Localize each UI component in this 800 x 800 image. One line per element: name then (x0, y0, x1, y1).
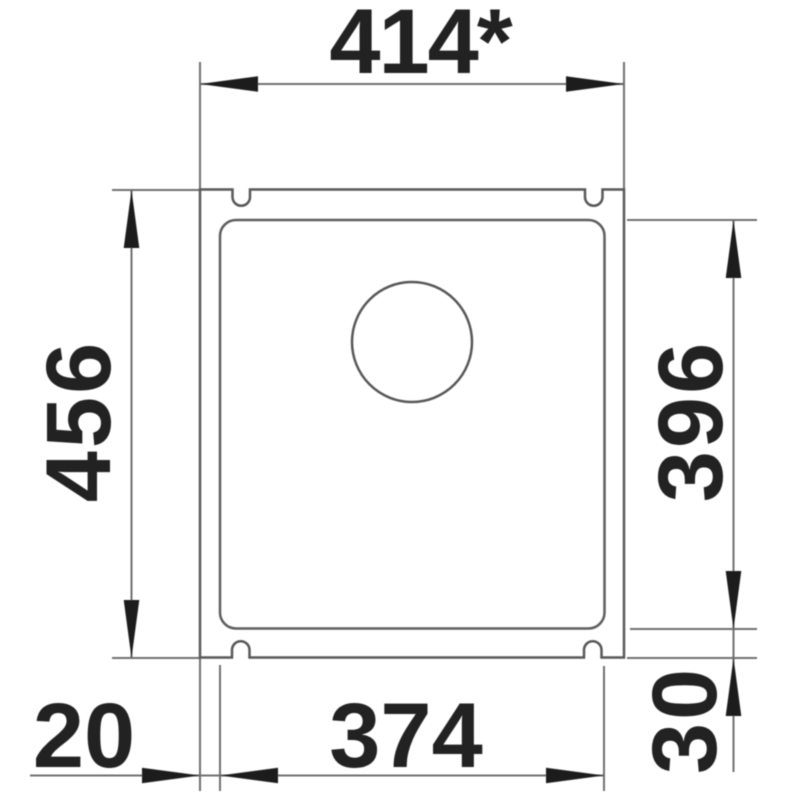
svg-text:456: 456 (28, 340, 130, 503)
svg-text:414*: 414* (329, 0, 512, 93)
svg-text:374: 374 (329, 685, 483, 787)
svg-text:20: 20 (33, 685, 135, 787)
svg-text:396: 396 (640, 340, 742, 503)
svg-text:30: 30 (634, 666, 736, 774)
